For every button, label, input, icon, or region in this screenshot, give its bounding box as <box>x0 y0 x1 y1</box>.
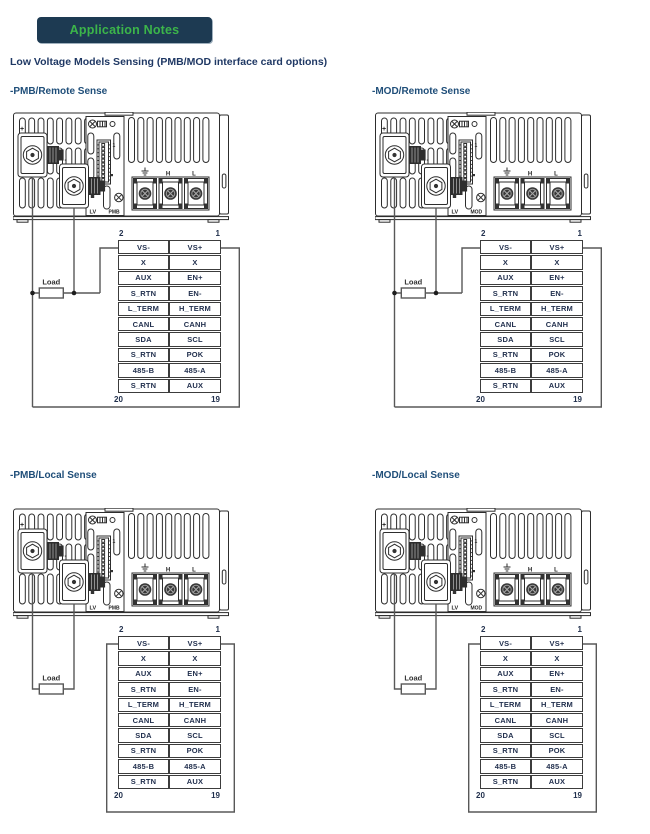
pin-number-1: 1 <box>204 625 220 634</box>
diagram-body: 1 LV PMB <box>10 86 272 438</box>
pin-cell: SCL <box>169 728 221 742</box>
load-resistor: Load <box>401 674 425 695</box>
pin-number-2: 2 <box>481 625 485 634</box>
badge-label: Application Notes <box>70 23 180 37</box>
pin-cell: X <box>531 255 583 269</box>
pin-cell: POK <box>531 348 583 362</box>
pin-cell: H_TERM <box>169 302 221 316</box>
pin-assignment-table: VS-VS+XXAUXEN+S_RTNEN-L_TERMH_TERMCANLCA… <box>480 240 583 393</box>
diagram-pmb-remote: -PMB/Remote Sense <box>10 86 272 438</box>
pin-cell: X <box>480 651 531 665</box>
pin-cell: L_TERM <box>118 302 169 316</box>
pin-number-1: 1 <box>204 229 220 238</box>
pin-number-2: 2 <box>119 625 123 634</box>
pin-cell: EN+ <box>531 271 583 285</box>
pin-cell: AUX <box>118 667 169 681</box>
pin-cell: L_TERM <box>480 302 531 316</box>
pin-cell: CANL <box>480 317 531 331</box>
load-label: Load <box>42 674 60 683</box>
pin-cell: EN+ <box>169 667 221 681</box>
pin-cell: CANH <box>169 713 221 727</box>
pin-cell: AUX <box>118 271 169 285</box>
load-label: Load <box>42 278 60 287</box>
pin-number-20: 20 <box>114 395 123 404</box>
pin-cell: CANL <box>118 713 169 727</box>
pin-cell: SCL <box>531 728 583 742</box>
pin-cell: X <box>118 255 169 269</box>
pin-cell: S_RTN <box>480 682 531 696</box>
load-resistor: Load <box>39 674 63 695</box>
pin-number-2: 2 <box>481 229 485 238</box>
pin-cell: S_RTN <box>118 379 169 393</box>
pin-assignment-table: VS-VS+XXAUXEN+S_RTNEN-L_TERMH_TERMCANLCA… <box>480 636 583 789</box>
pin-cell: AUX <box>531 379 583 393</box>
pin-cell: EN+ <box>169 271 221 285</box>
diagram-mod-remote: -MOD/Remote Sense <box>372 86 634 438</box>
pin-cell: VS- <box>118 636 169 650</box>
pin-cell: 485-A <box>531 363 583 377</box>
pin-cell: VS- <box>480 240 531 254</box>
pin-cell: EN- <box>531 682 583 696</box>
diagram-body: 1 LV MOD <box>372 482 634 834</box>
pin-cell: 485-B <box>118 363 169 377</box>
pin-cell: POK <box>169 348 221 362</box>
pin-number-20: 20 <box>476 395 485 404</box>
pin-cell: S_RTN <box>480 348 531 362</box>
pin-cell: X <box>480 255 531 269</box>
pin-cell: H_TERM <box>169 698 221 712</box>
pin-cell: S_RTN <box>118 682 169 696</box>
pin-number-19: 19 <box>566 395 582 404</box>
junction-dot <box>72 291 77 296</box>
pin-cell: AUX <box>531 775 583 789</box>
pin-cell: POK <box>169 744 221 758</box>
pin-cell: SDA <box>480 728 531 742</box>
pin-cell: L_TERM <box>118 698 169 712</box>
pin-number-20: 20 <box>114 791 123 800</box>
page-subtitle: Low Voltage Models Sensing (PMB/MOD inte… <box>10 56 327 68</box>
pin-number-19: 19 <box>204 395 220 404</box>
diagram-title: -PMB/Local Sense <box>10 470 97 481</box>
diagram-body: 1 LV MOD <box>372 86 634 438</box>
pin-number-20: 20 <box>476 791 485 800</box>
pin-cell: S_RTN <box>118 744 169 758</box>
load-resistor: Load <box>401 278 425 299</box>
pin-cell: 485-A <box>169 759 221 773</box>
pin-cell: VS+ <box>531 240 583 254</box>
pin-cell: EN- <box>169 286 221 300</box>
pin-cell: X <box>531 651 583 665</box>
pin-cell: 485-A <box>169 363 221 377</box>
pin-cell: CANL <box>118 317 169 331</box>
pin-cell: S_RTN <box>480 775 531 789</box>
pin-number-1: 1 <box>566 229 582 238</box>
pin-number-1: 1 <box>566 625 582 634</box>
pin-cell: SCL <box>169 332 221 346</box>
pin-number-19: 19 <box>566 791 582 800</box>
pin-cell: CANH <box>531 317 583 331</box>
pin-cell: EN- <box>531 286 583 300</box>
pin-cell: S_RTN <box>118 286 169 300</box>
pin-cell: S_RTN <box>480 744 531 758</box>
pin-cell: 485-B <box>480 363 531 377</box>
junction-dot <box>434 291 439 296</box>
pin-cell: CANH <box>531 713 583 727</box>
pin-cell: VS+ <box>169 240 221 254</box>
pin-cell: S_RTN <box>480 379 531 393</box>
pin-cell: EN+ <box>531 667 583 681</box>
pin-cell: CANH <box>169 317 221 331</box>
diagram-title: -MOD/Local Sense <box>372 470 460 481</box>
pin-cell: L_TERM <box>480 698 531 712</box>
pin-assignment-table: VS-VS+XXAUXEN+S_RTNEN-L_TERMH_TERMCANLCA… <box>118 636 221 789</box>
application-notes-badge: Application Notes <box>37 17 212 43</box>
pin-cell: SCL <box>531 332 583 346</box>
pin-cell: SDA <box>118 728 169 742</box>
pin-cell: AUX <box>480 271 531 285</box>
pin-number-19: 19 <box>204 791 220 800</box>
pin-cell: VS+ <box>169 636 221 650</box>
pin-assignment-table: VS-VS+XXAUXEN+S_RTNEN-L_TERMH_TERMCANLCA… <box>118 240 221 393</box>
pin-number-2: 2 <box>119 229 123 238</box>
diagram-pmb-local: -PMB/Local Sense <box>10 470 272 822</box>
pin-cell: S_RTN <box>118 775 169 789</box>
pin-cell: S_RTN <box>118 348 169 362</box>
pin-cell: X <box>169 651 221 665</box>
pin-cell: EN- <box>169 682 221 696</box>
pin-cell: H_TERM <box>531 698 583 712</box>
pin-cell: 485-A <box>531 759 583 773</box>
load-label: Load <box>404 674 422 683</box>
junction-dot <box>30 291 35 296</box>
diagram-body: 1 LV PMB <box>10 482 272 834</box>
pin-cell: H_TERM <box>531 302 583 316</box>
pin-cell: 485-B <box>118 759 169 773</box>
pin-cell: VS- <box>118 240 169 254</box>
pin-cell: S_RTN <box>480 286 531 300</box>
pin-cell: AUX <box>169 379 221 393</box>
pin-cell: X <box>169 255 221 269</box>
pin-cell: CANL <box>480 713 531 727</box>
pin-cell: X <box>118 651 169 665</box>
pin-cell: POK <box>531 744 583 758</box>
diagram-mod-local: -MOD/Local Sense <box>372 470 634 822</box>
pin-cell: AUX <box>480 667 531 681</box>
pin-cell: VS+ <box>531 636 583 650</box>
pin-cell: SDA <box>118 332 169 346</box>
load-label: Load <box>404 278 422 287</box>
junction-dot <box>392 291 397 296</box>
pin-cell: VS- <box>480 636 531 650</box>
load-resistor: Load <box>39 278 63 299</box>
pin-cell: 485-B <box>480 759 531 773</box>
pin-cell: AUX <box>169 775 221 789</box>
pin-cell: SDA <box>480 332 531 346</box>
